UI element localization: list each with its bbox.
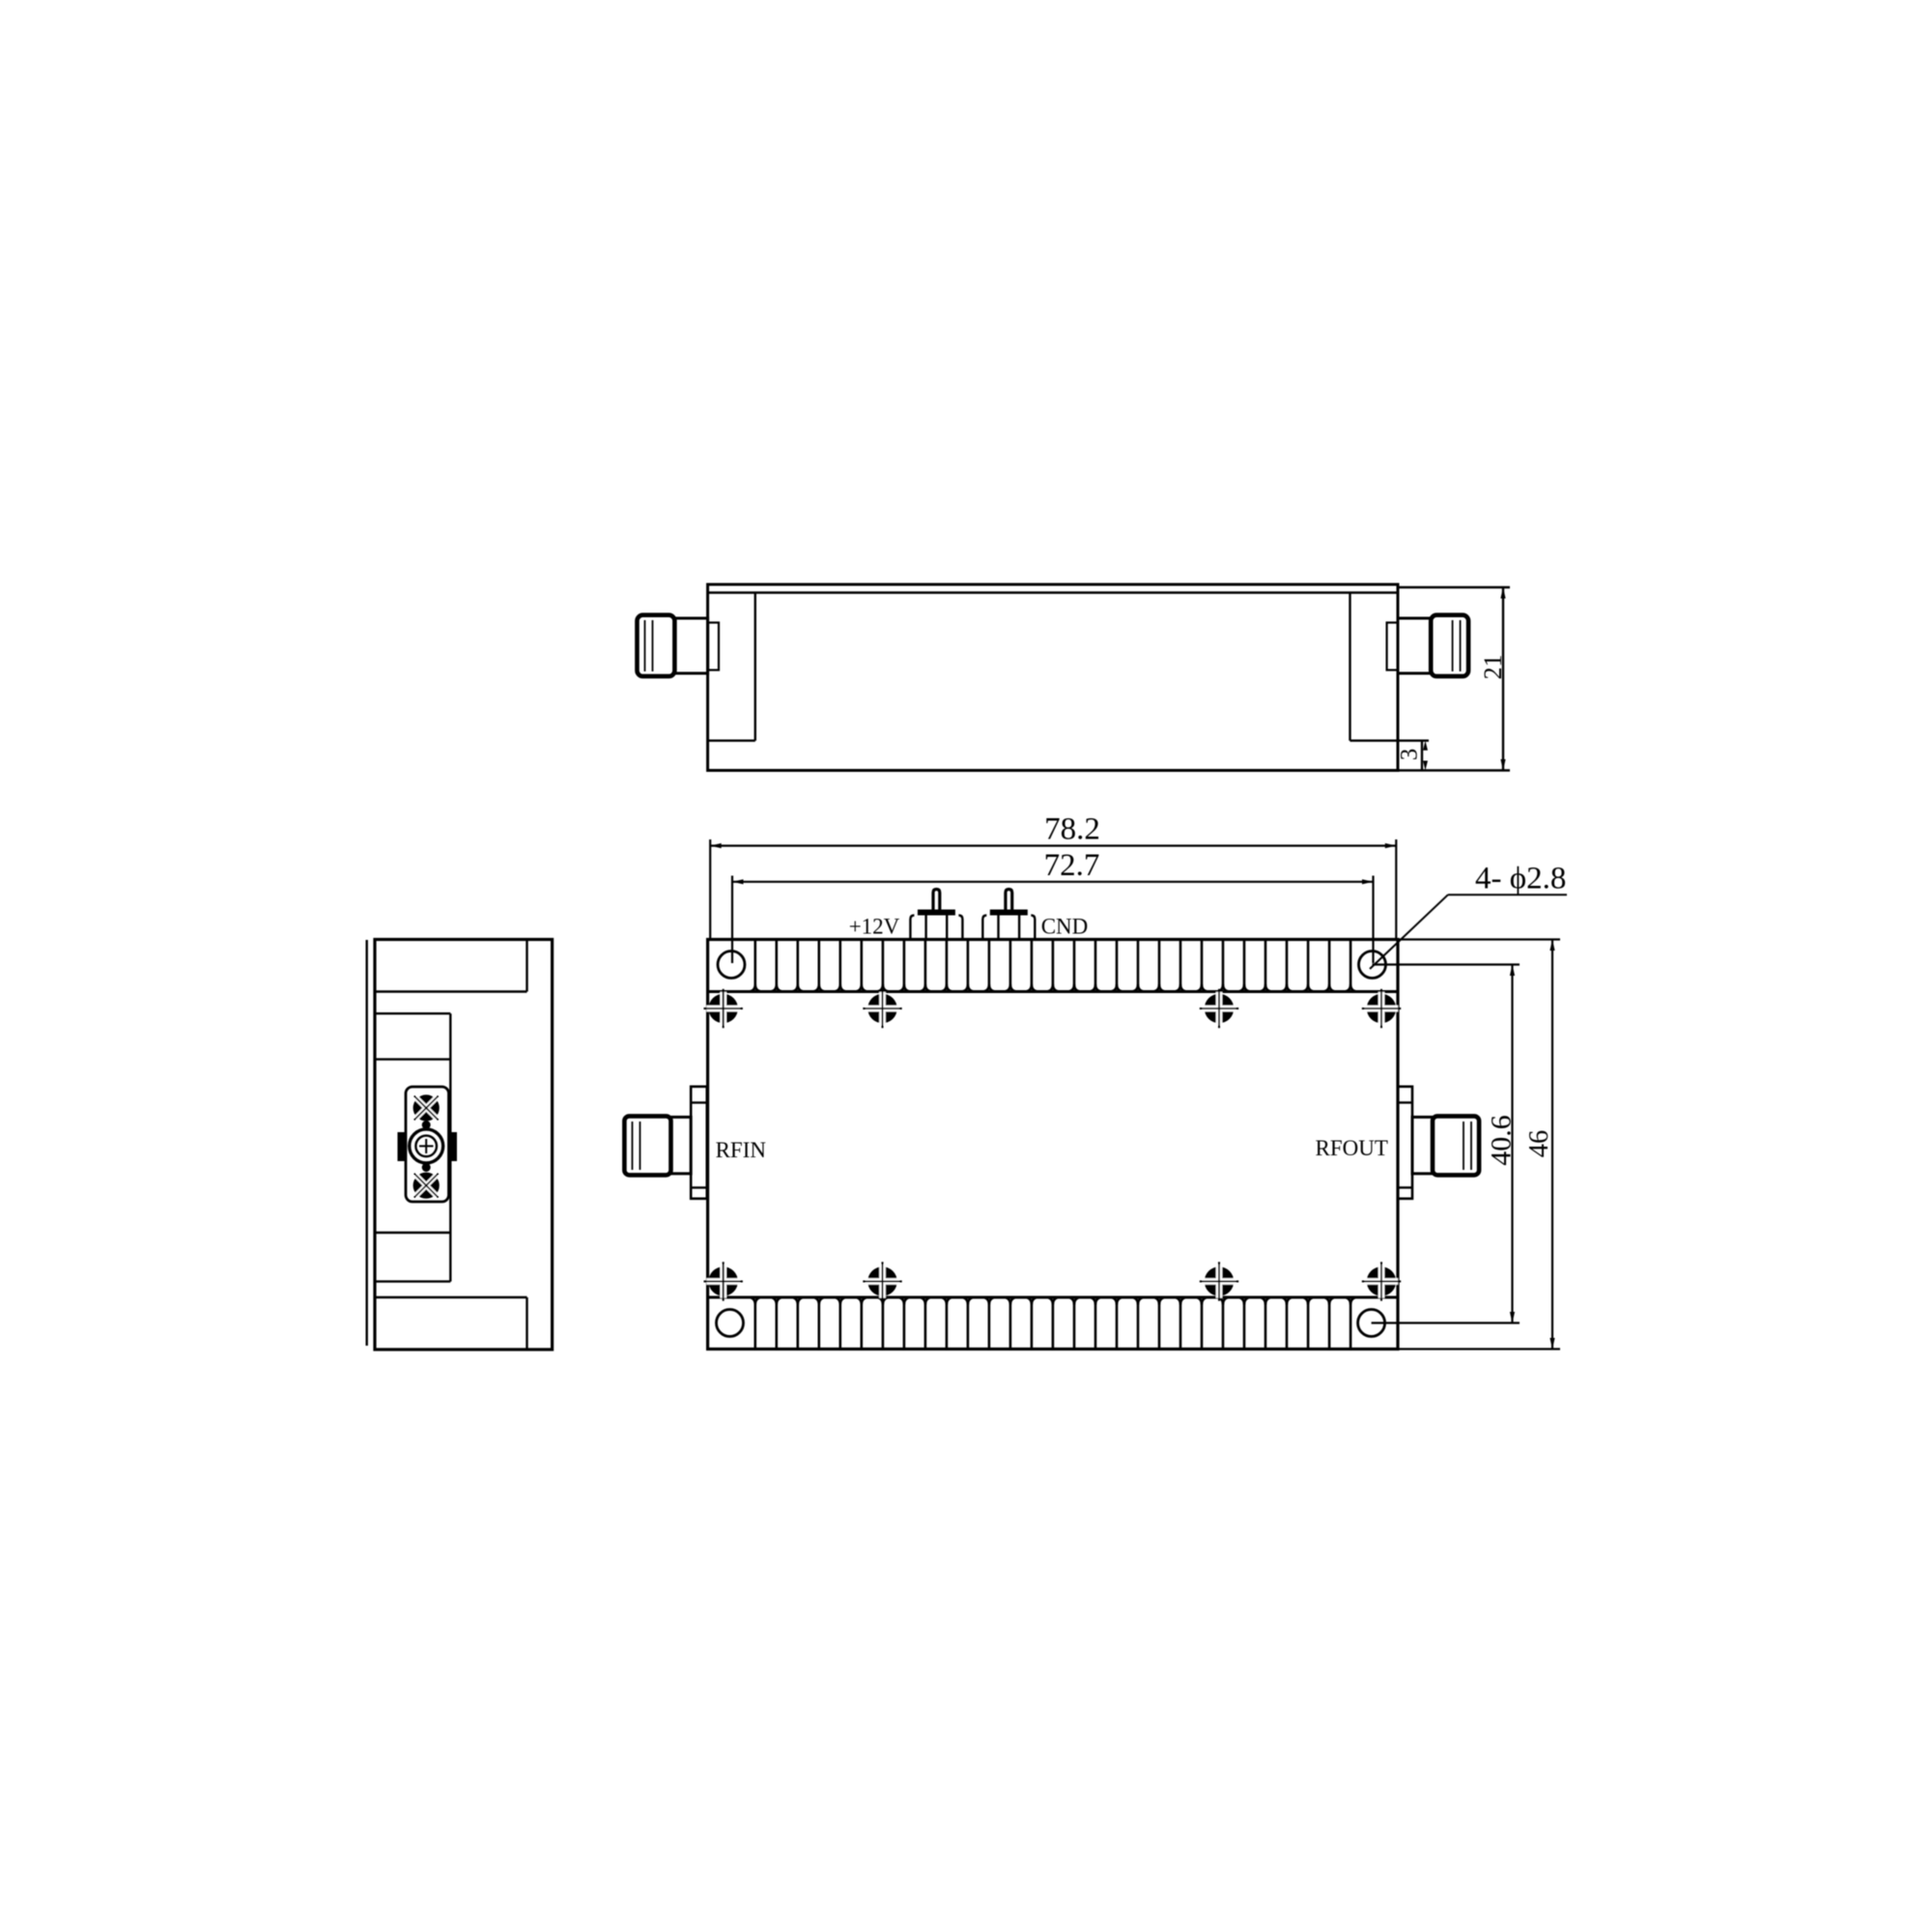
svg-text:CND: CND <box>1041 915 1089 939</box>
svg-text:40.6: 40.6 <box>1486 1115 1518 1166</box>
svg-text:4- ϕ2.8: 4- ϕ2.8 <box>1475 862 1566 896</box>
svg-text:46: 46 <box>1524 1130 1554 1158</box>
svg-text:72.7: 72.7 <box>1044 848 1100 883</box>
svg-text:RFIN: RFIN <box>716 1138 767 1162</box>
svg-text:3: 3 <box>1397 749 1423 761</box>
svg-text:RFOUT: RFOUT <box>1315 1136 1387 1160</box>
svg-text:78.2: 78.2 <box>1044 812 1100 847</box>
svg-text:+12V: +12V <box>849 915 900 939</box>
svg-text:21: 21 <box>1479 655 1507 680</box>
